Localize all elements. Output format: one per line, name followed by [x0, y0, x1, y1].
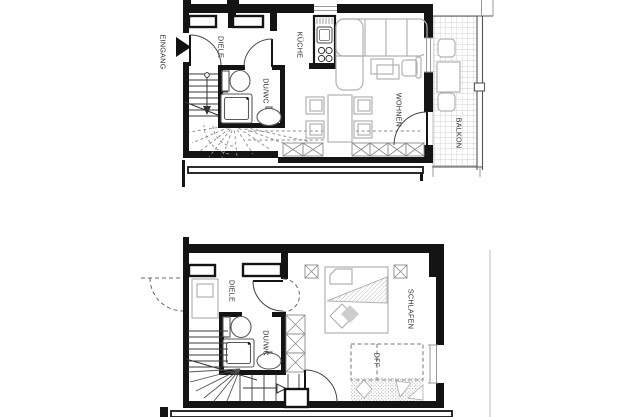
toilet-tank: [222, 71, 229, 91]
label-eingang: EINGANG: [159, 35, 168, 70]
wall-niche: [189, 265, 215, 276]
chimney: [285, 389, 308, 407]
balcony-chair: [438, 39, 455, 57]
wall-niche: [189, 16, 216, 27]
toilet: [230, 71, 250, 92]
wall-niche: [233, 16, 263, 27]
floor-plan-image: EINGANG DIELE DU/WC KÜCHE WOHNEN BALKON: [0, 0, 640, 417]
dining-table: [328, 95, 352, 142]
balcony-table: [437, 62, 460, 92]
label-schlafen: SCHLAFEN: [407, 289, 416, 329]
coffee-table: [371, 59, 393, 74]
stair-door: [305, 370, 337, 402]
closet: [286, 315, 305, 372]
blanket: [327, 277, 387, 303]
balcony-chair: [438, 93, 455, 111]
toilet-tank: [223, 317, 230, 337]
balcony: [432, 0, 493, 177]
entrance-door: [190, 35, 221, 66]
label-balkon: BALKON: [455, 118, 464, 149]
section-cut-lines: [182, 160, 423, 187]
label-duwc-upper: DU/WC: [262, 78, 271, 104]
living-window: [424, 38, 433, 72]
entrance-arrow-icon: [176, 37, 191, 57]
wall-niche: [243, 264, 281, 276]
floor-plan-drawing: EINGANG DIELE DU/WC KÜCHE WOHNEN BALKON: [0, 0, 640, 417]
sofa: [336, 19, 427, 56]
coffee-table: [377, 65, 399, 79]
dashed-door-below: [141, 278, 183, 311]
bath-door-swing: [244, 39, 272, 67]
stipple-zone: [351, 378, 423, 401]
stair-direction-start: [205, 73, 210, 78]
kitchen-unit: [309, 16, 336, 69]
bed: [325, 267, 388, 333]
label-diele-upper: DIELE: [217, 36, 226, 58]
section-cut-lines: [160, 407, 452, 417]
railing-post: [475, 83, 485, 91]
wardrobe: [192, 279, 218, 318]
lower-floor-plan: DIELE DU/WC SCHLAFEN DFF: [141, 237, 490, 417]
roof-window-dff: [351, 344, 423, 380]
bathroom-lower: [219, 312, 286, 375]
label-dff: DFF: [373, 353, 382, 368]
armchair: [402, 60, 417, 76]
label-kueche: KÜCHE: [296, 32, 305, 58]
label-diele-lower: DIELE: [228, 280, 237, 302]
bathroom-upper: [218, 39, 285, 128]
upper-floor-plan: EINGANG DIELE DU/WC KÜCHE WOHNEN BALKON: [159, 0, 494, 187]
dining-chairs: [306, 97, 372, 138]
label-duwc-lower: DU/WC: [262, 330, 271, 356]
bedroom-door: [253, 279, 300, 312]
toilet: [231, 317, 251, 338]
label-wohnen: WOHNEN: [395, 93, 404, 127]
window-strip: [283, 143, 424, 156]
sink: [257, 109, 281, 126]
